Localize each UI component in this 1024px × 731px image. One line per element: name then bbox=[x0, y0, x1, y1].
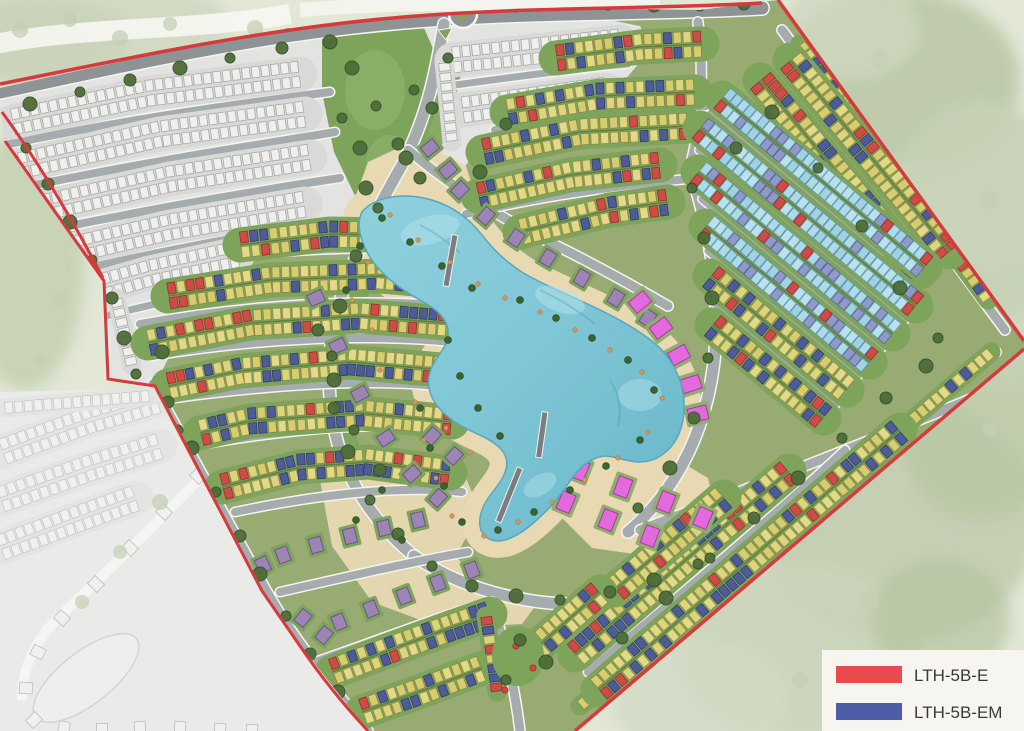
legend-swatch-lth-5b-e bbox=[836, 666, 902, 683]
legend-label-lth-5b-e: LTH-5B-E bbox=[914, 666, 988, 685]
legend: LTH-5B-E LTH-5B-EM bbox=[822, 650, 1024, 731]
legend-swatch-lth-5b-em bbox=[836, 703, 902, 720]
master-plan-map: LTH-5B-E LTH-5B-EM bbox=[0, 0, 1024, 731]
master-plan-viewport: LTH-5B-E LTH-5B-EM bbox=[0, 0, 1024, 731]
legend-label-lth-5b-em: LTH-5B-EM bbox=[914, 703, 1002, 722]
